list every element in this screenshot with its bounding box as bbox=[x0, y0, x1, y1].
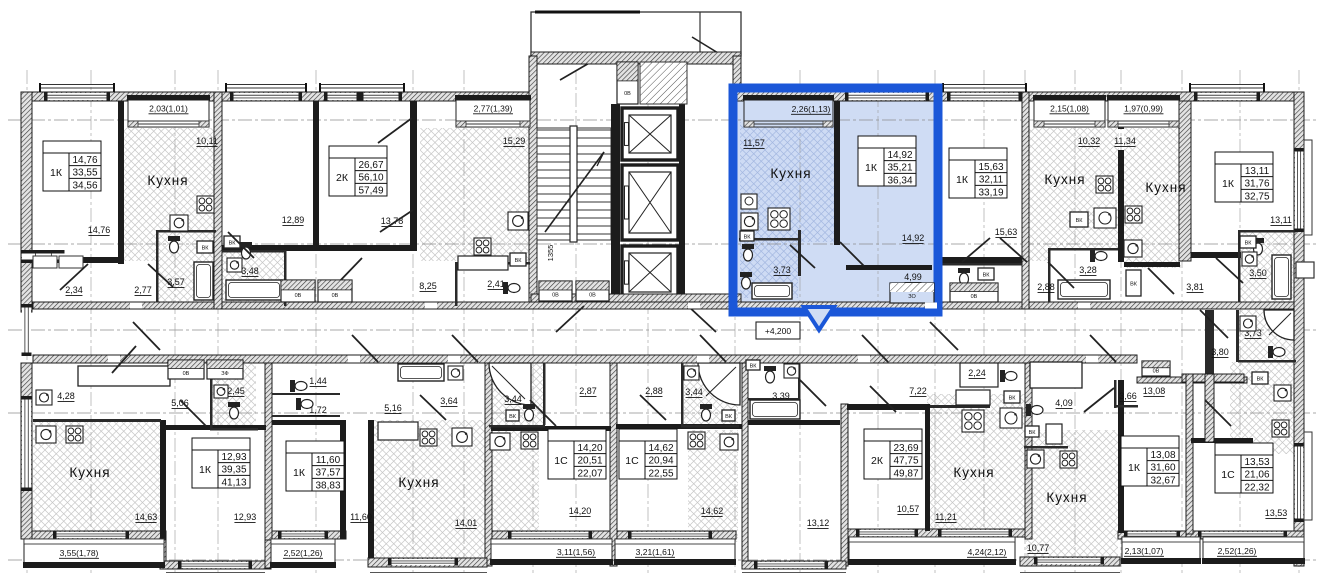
svg-text:3,55(1,78): 3,55(1,78) bbox=[60, 548, 99, 558]
svg-text:47,75: 47,75 bbox=[893, 456, 918, 467]
svg-text:32,11: 32,11 bbox=[979, 175, 1004, 186]
svg-text:2,52(1,26): 2,52(1,26) bbox=[1218, 546, 1257, 556]
svg-text:49,87: 49,87 bbox=[893, 468, 918, 479]
svg-text:2,13(1,07): 2,13(1,07) bbox=[1125, 546, 1164, 556]
svg-text:ВК: ВК bbox=[983, 273, 991, 279]
svg-text:26,67: 26,67 bbox=[358, 160, 383, 171]
svg-text:11,21: 11,21 bbox=[935, 512, 957, 522]
svg-text:Кухня: Кухня bbox=[1044, 172, 1085, 187]
svg-text:ВК: ВК bbox=[1257, 377, 1265, 383]
svg-text:5,16: 5,16 bbox=[384, 403, 402, 413]
svg-text:32,67: 32,67 bbox=[1150, 475, 1175, 486]
svg-text:1К: 1К bbox=[1222, 178, 1235, 190]
svg-text:3,44: 3,44 bbox=[685, 387, 703, 397]
svg-text:35,21: 35,21 bbox=[887, 163, 912, 174]
svg-text:13,53: 13,53 bbox=[1265, 508, 1288, 518]
svg-text:33,55: 33,55 bbox=[72, 168, 97, 179]
svg-text:14,92: 14,92 bbox=[902, 233, 925, 243]
svg-text:Кухня: Кухня bbox=[398, 475, 439, 490]
svg-text:23,69: 23,69 bbox=[893, 443, 918, 454]
svg-text:13,11: 13,11 bbox=[1245, 166, 1270, 177]
svg-text:12,93: 12,93 bbox=[221, 452, 246, 463]
svg-text:Кухня: Кухня bbox=[1145, 180, 1186, 195]
svg-text:14,20: 14,20 bbox=[569, 506, 592, 516]
svg-text:3,50: 3,50 bbox=[1249, 268, 1267, 278]
svg-text:ВК: ВК bbox=[744, 235, 752, 241]
svg-text:10,32: 10,32 bbox=[1078, 136, 1101, 146]
svg-text:Кухня: Кухня bbox=[770, 166, 811, 181]
svg-text:8,25: 8,25 bbox=[419, 281, 437, 291]
svg-text:14,62: 14,62 bbox=[648, 443, 673, 454]
svg-text:14,76: 14,76 bbox=[72, 155, 97, 166]
svg-text:2,15(1,08): 2,15(1,08) bbox=[1050, 104, 1089, 114]
svg-text:1К: 1К bbox=[865, 162, 878, 174]
svg-text:3,66: 3,66 bbox=[1119, 391, 1137, 401]
svg-text:2,88: 2,88 bbox=[1037, 282, 1055, 292]
svg-text:0В: 0В bbox=[183, 371, 190, 377]
svg-text:14,01: 14,01 bbox=[455, 518, 478, 528]
svg-text:1К: 1К bbox=[293, 467, 306, 479]
svg-text:ВК: ВК bbox=[229, 241, 237, 247]
svg-text:ВК: ВК bbox=[1076, 218, 1084, 224]
svg-text:15,29: 15,29 bbox=[503, 136, 526, 146]
svg-text:4,09: 4,09 bbox=[1055, 398, 1073, 408]
svg-text:0В: 0В bbox=[624, 91, 631, 97]
svg-text:Кухня: Кухня bbox=[69, 465, 110, 480]
svg-text:22,55: 22,55 bbox=[648, 468, 673, 479]
svg-text:0В: 0В bbox=[295, 293, 302, 299]
svg-text:ВК: ВК bbox=[509, 414, 517, 420]
svg-text:2,87: 2,87 bbox=[579, 386, 597, 396]
svg-text:1К: 1К bbox=[199, 464, 212, 476]
svg-text:14,63: 14,63 bbox=[135, 512, 158, 522]
svg-text:36,34: 36,34 bbox=[887, 175, 912, 186]
svg-text:13,08: 13,08 bbox=[1150, 450, 1175, 461]
svg-text:3,81: 3,81 bbox=[1186, 282, 1204, 292]
svg-text:0В: 0В bbox=[589, 293, 596, 299]
svg-text:ЗО: ЗО bbox=[908, 294, 916, 300]
svg-text:4,24(2,12): 4,24(2,12) bbox=[968, 547, 1007, 557]
svg-text:10,11: 10,11 bbox=[196, 136, 218, 146]
svg-text:Кухня: Кухня bbox=[953, 465, 994, 480]
svg-text:14,92: 14,92 bbox=[887, 150, 912, 161]
svg-text:20,51: 20,51 bbox=[577, 456, 602, 467]
svg-text:11,57: 11,57 bbox=[743, 138, 765, 148]
svg-text:0В: 0В bbox=[1153, 369, 1160, 375]
svg-text:56,10: 56,10 bbox=[358, 173, 383, 184]
svg-text:3,48: 3,48 bbox=[241, 266, 259, 276]
svg-text:11,60: 11,60 bbox=[316, 455, 341, 466]
svg-text:ВК: ВК bbox=[202, 246, 210, 252]
svg-text:ВК: ВК bbox=[1029, 430, 1037, 436]
svg-text:0В: 0В bbox=[332, 293, 339, 299]
svg-text:32,75: 32,75 bbox=[1244, 191, 1269, 202]
svg-text:3,28: 3,28 bbox=[1079, 265, 1097, 275]
svg-text:3,80: 3,80 bbox=[1211, 347, 1229, 357]
svg-text:2К: 2К bbox=[336, 172, 349, 184]
svg-text:2,52(1,26): 2,52(1,26) bbox=[284, 548, 323, 558]
svg-text:37,57: 37,57 bbox=[315, 468, 340, 479]
svg-text:4,28: 4,28 bbox=[57, 391, 75, 401]
svg-text:ВК: ВК bbox=[750, 364, 758, 370]
svg-text:14,20: 14,20 bbox=[577, 443, 602, 454]
svg-text:1К: 1К bbox=[1128, 462, 1141, 474]
svg-text:2,88: 2,88 bbox=[645, 386, 663, 396]
svg-text:14,62: 14,62 bbox=[701, 506, 724, 516]
svg-text:+4,200: +4,200 bbox=[765, 326, 792, 336]
svg-text:ВК: ВК bbox=[1130, 282, 1138, 288]
svg-text:1355: 1355 bbox=[546, 245, 555, 262]
svg-text:10,57: 10,57 bbox=[897, 504, 920, 514]
svg-text:2,24: 2,24 bbox=[968, 368, 986, 378]
svg-text:2,77: 2,77 bbox=[134, 285, 152, 295]
svg-text:10,77: 10,77 bbox=[1027, 543, 1050, 553]
svg-text:11,34: 11,34 bbox=[1114, 136, 1136, 146]
svg-text:31,60: 31,60 bbox=[1150, 463, 1175, 474]
svg-text:15,63: 15,63 bbox=[978, 162, 1003, 173]
svg-text:21,06: 21,06 bbox=[1244, 470, 1269, 481]
svg-text:22,32: 22,32 bbox=[1244, 482, 1269, 493]
svg-text:ВК: ВК bbox=[515, 258, 523, 264]
svg-text:ЗФ: ЗФ bbox=[221, 371, 228, 377]
svg-text:13,08: 13,08 bbox=[1143, 386, 1166, 396]
svg-text:4,99: 4,99 bbox=[904, 272, 922, 282]
svg-text:3,21(1,61): 3,21(1,61) bbox=[636, 547, 675, 557]
svg-text:2,41: 2,41 bbox=[487, 279, 505, 289]
svg-text:13,12: 13,12 bbox=[807, 518, 830, 528]
svg-text:41,13: 41,13 bbox=[221, 477, 246, 488]
svg-text:14,76: 14,76 bbox=[88, 225, 111, 235]
svg-text:12,93: 12,93 bbox=[234, 512, 257, 522]
svg-text:22,07: 22,07 bbox=[577, 468, 602, 479]
svg-text:34,56: 34,56 bbox=[72, 180, 97, 191]
svg-text:2,45: 2,45 bbox=[227, 386, 245, 396]
svg-text:Кухня: Кухня bbox=[147, 173, 188, 188]
svg-text:1С: 1С bbox=[554, 455, 568, 467]
svg-text:12,89: 12,89 bbox=[282, 215, 305, 225]
svg-text:33,19: 33,19 bbox=[978, 187, 1003, 198]
svg-text:Кухня: Кухня bbox=[1046, 490, 1087, 505]
svg-text:11,60: 11,60 bbox=[350, 512, 372, 522]
svg-text:2,03(1,01): 2,03(1,01) bbox=[149, 104, 188, 114]
svg-text:13,11: 13,11 bbox=[1270, 215, 1292, 225]
svg-text:ВК: ВК bbox=[1245, 241, 1253, 247]
svg-text:3,64: 3,64 bbox=[440, 396, 458, 406]
svg-text:1К: 1К bbox=[50, 167, 63, 179]
svg-text:1К: 1К bbox=[956, 174, 969, 186]
svg-text:39,35: 39,35 bbox=[221, 465, 246, 476]
svg-text:0В: 0В bbox=[552, 293, 559, 299]
svg-text:2К: 2К bbox=[871, 455, 884, 467]
svg-text:0В: 0В bbox=[971, 294, 978, 300]
svg-text:20,94: 20,94 bbox=[648, 456, 673, 467]
svg-text:38,83: 38,83 bbox=[315, 480, 340, 491]
svg-text:3,73: 3,73 bbox=[773, 265, 791, 275]
svg-text:1С: 1С bbox=[1221, 469, 1235, 481]
svg-text:3,57: 3,57 bbox=[167, 277, 185, 287]
svg-text:13,53: 13,53 bbox=[1244, 457, 1269, 468]
svg-text:ВК: ВК bbox=[1009, 396, 1017, 402]
svg-text:57,49: 57,49 bbox=[358, 185, 383, 196]
svg-text:2,34: 2,34 bbox=[65, 285, 83, 295]
svg-text:31,76: 31,76 bbox=[1244, 179, 1269, 190]
svg-text:1,97(0,99): 1,97(0,99) bbox=[1124, 104, 1163, 114]
svg-text:3,44: 3,44 bbox=[504, 394, 522, 404]
svg-text:7,22: 7,22 bbox=[909, 386, 927, 396]
svg-text:15,63: 15,63 bbox=[995, 227, 1018, 237]
svg-text:1,44: 1,44 bbox=[309, 376, 327, 386]
svg-text:3,11(1,56): 3,11(1,56) bbox=[557, 547, 595, 557]
svg-text:2,26(1,13): 2,26(1,13) bbox=[792, 104, 831, 114]
svg-text:ВК: ВК bbox=[725, 414, 733, 420]
svg-text:1С: 1С bbox=[625, 455, 639, 467]
svg-text:2,77(1,39): 2,77(1,39) bbox=[474, 104, 513, 114]
